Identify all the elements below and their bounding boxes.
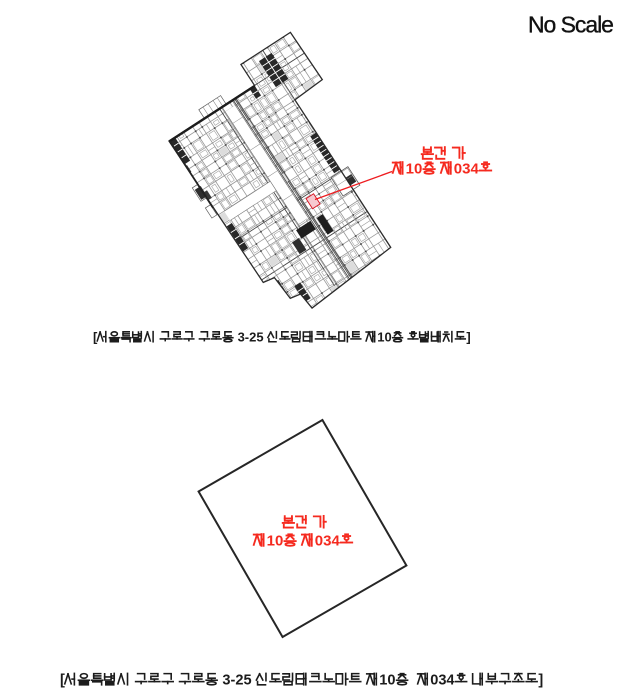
svg-text:3-25: 3-25 xyxy=(234,330,267,345)
svg-text:No Scale: No Scale xyxy=(528,12,613,38)
svg-text:[: [ xyxy=(93,330,98,345)
svg-text:10: 10 xyxy=(379,673,395,689)
svg-text:10: 10 xyxy=(377,330,391,345)
svg-text:3-25: 3-25 xyxy=(218,673,255,689)
svg-text:034: 034 xyxy=(315,533,341,550)
svg-text:]: ] xyxy=(466,330,470,345)
svg-text:10: 10 xyxy=(406,161,423,178)
svg-text:[: [ xyxy=(60,673,65,689)
svg-text:034: 034 xyxy=(430,673,455,689)
svg-text:034: 034 xyxy=(454,161,480,178)
svg-text:10: 10 xyxy=(267,533,284,550)
svg-text:]: ] xyxy=(538,673,543,689)
